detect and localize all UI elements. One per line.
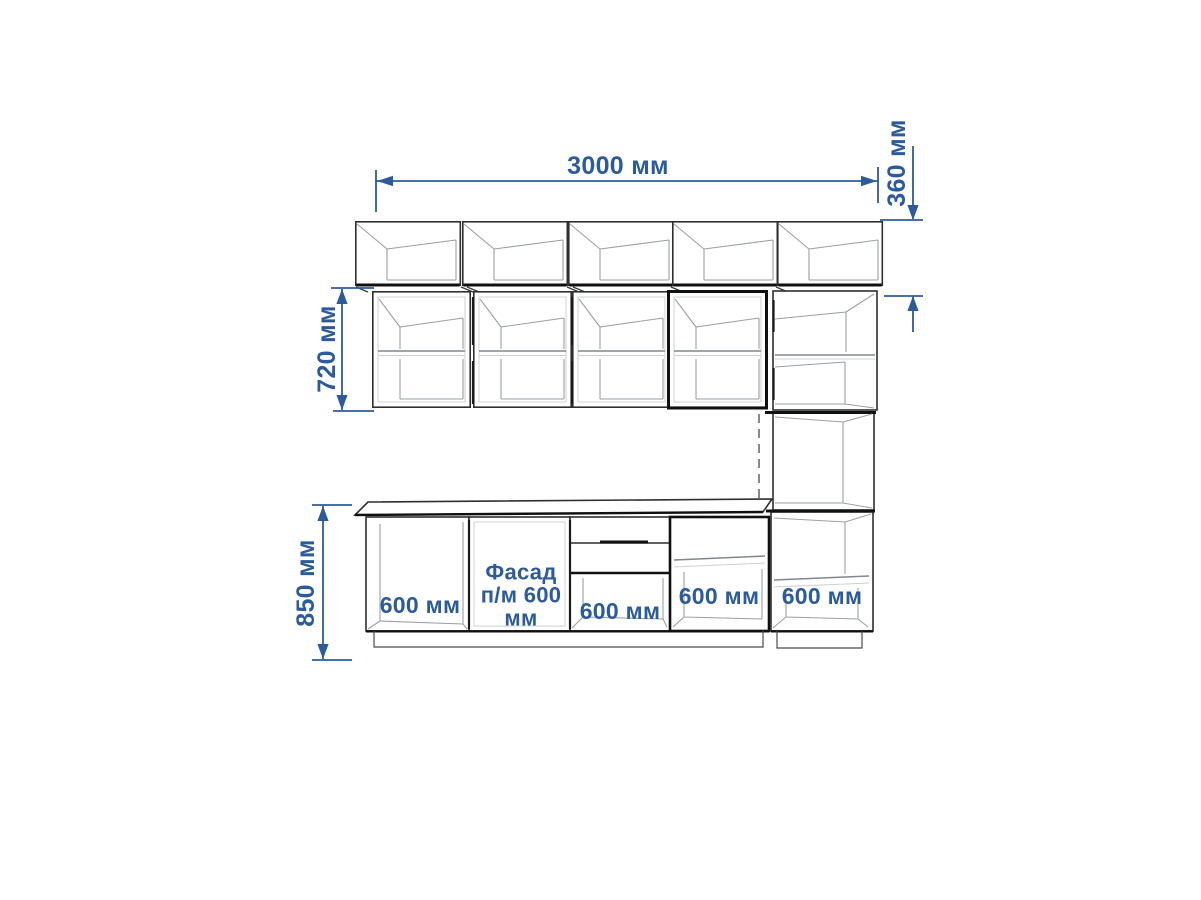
kitchen-elevation-svg bbox=[0, 0, 1201, 900]
dimension-label-total-width: 3000 мм bbox=[567, 153, 669, 179]
wall-cabinet-row bbox=[373, 292, 767, 409]
cabinet-label-base-3: 600 мм bbox=[580, 599, 661, 623]
dimension-label-base-row-height: 850 мм bbox=[293, 539, 319, 626]
cabinet-label-base-2-facade: Фасад п/м 600 мм bbox=[481, 561, 562, 630]
countertop bbox=[355, 499, 772, 515]
dimension-label-top-row-height: 360 мм bbox=[884, 119, 910, 206]
top-cabinet-row bbox=[356, 222, 883, 292]
dimension-label-wall-row-height: 720 мм bbox=[314, 305, 340, 392]
cabinet-label-base-1: 600 мм bbox=[380, 593, 461, 617]
tall-cabinet-upper bbox=[759, 291, 877, 510]
tall-cabinet-base bbox=[766, 511, 875, 648]
cabinet-label-tall-base: 600 мм bbox=[782, 584, 863, 608]
cabinet-label-base-4: 600 мм bbox=[679, 584, 760, 608]
kitchen-elevation-diagram: 3000 мм 360 мм 720 мм 850 мм 600 мм Фаса… bbox=[0, 0, 1201, 900]
